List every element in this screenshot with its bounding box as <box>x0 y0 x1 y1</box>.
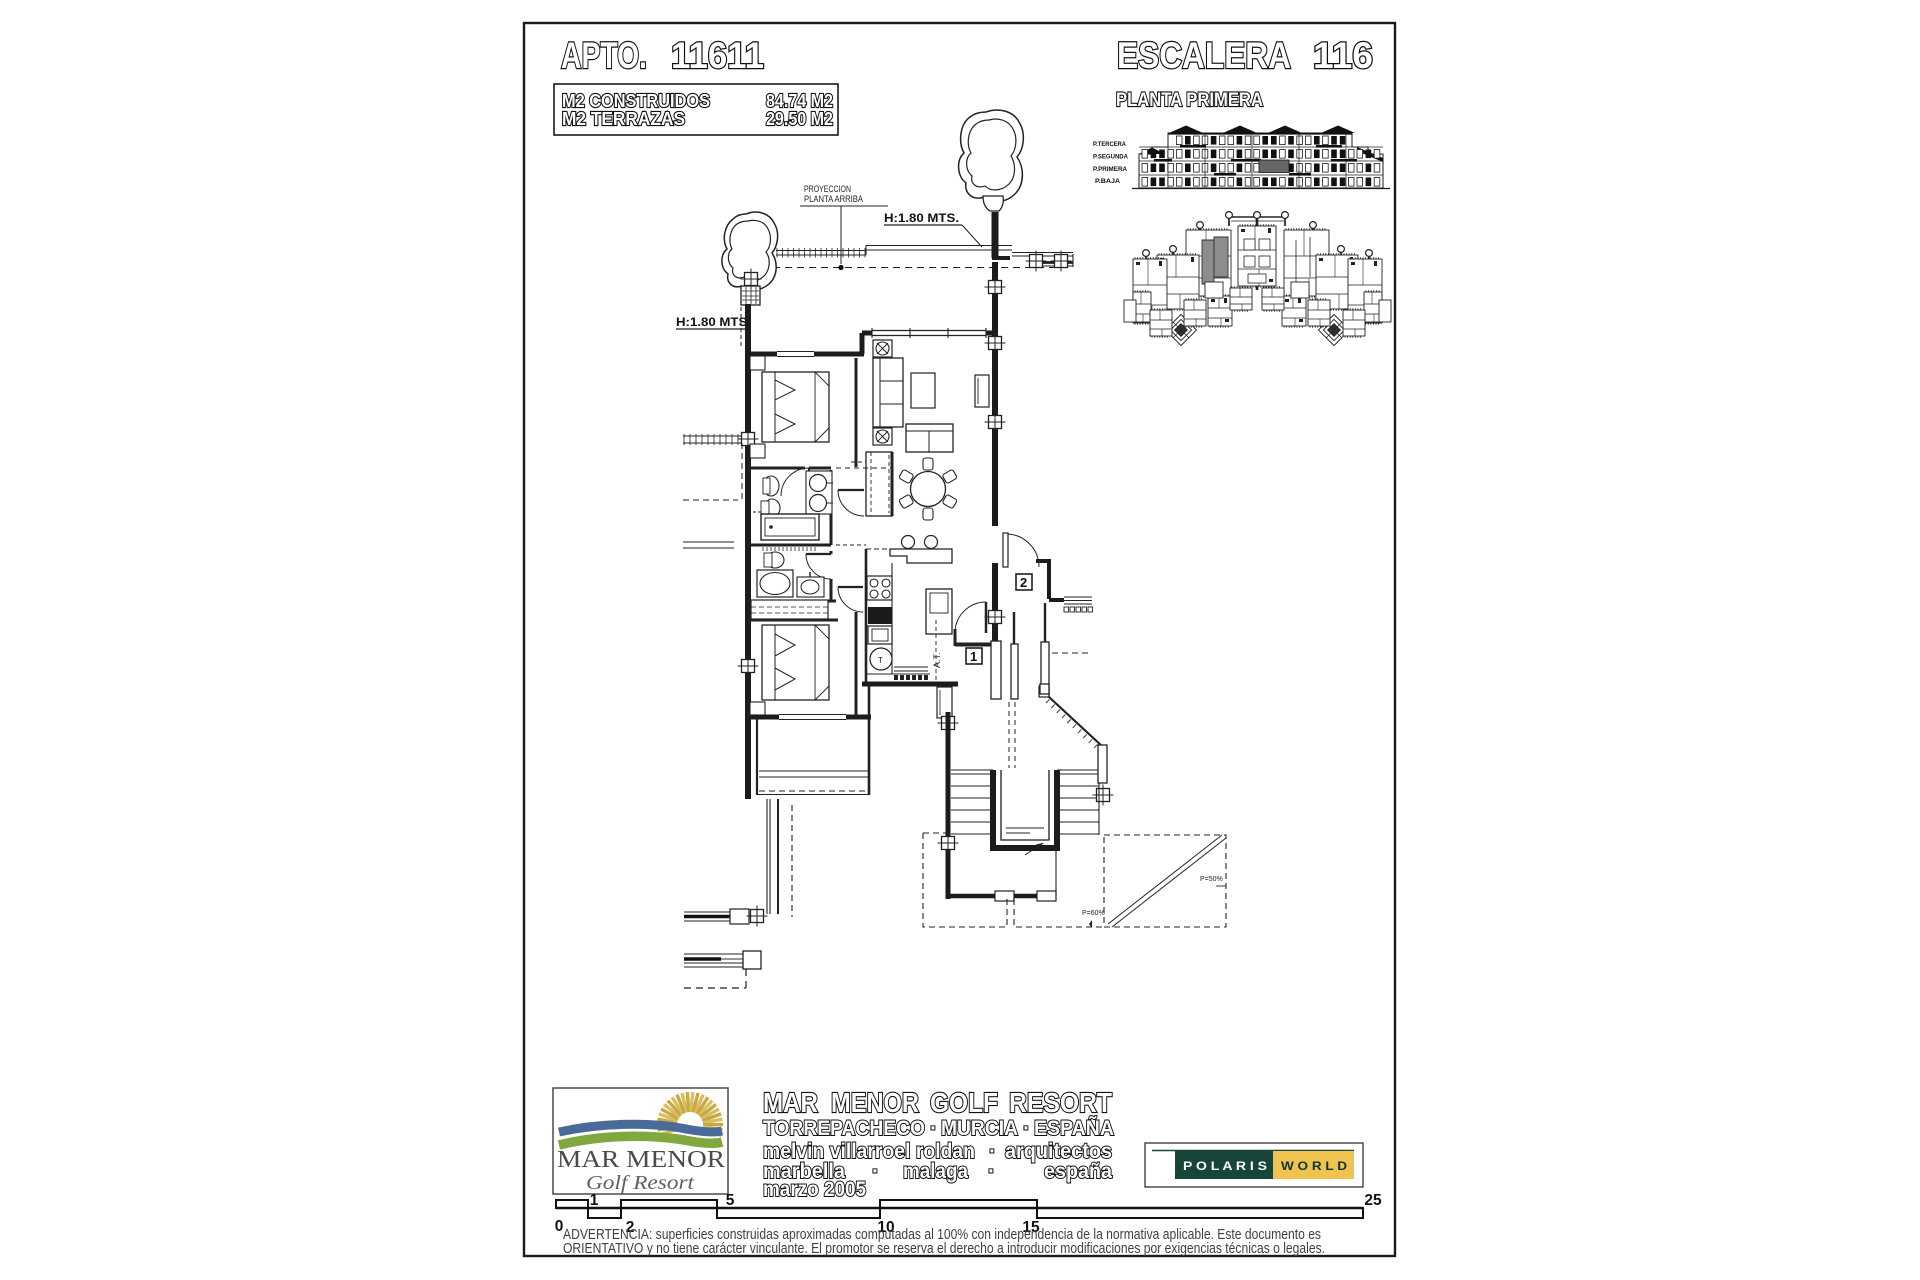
svg-text:·: · <box>872 1160 879 1183</box>
svg-text:MAR MENOR: MAR MENOR <box>557 1146 726 1173</box>
svg-text:PROYECCION: PROYECCION <box>804 184 851 194</box>
svg-text:ESPAÑA: ESPAÑA <box>1034 1117 1114 1140</box>
svg-text:5: 5 <box>726 1192 735 1209</box>
svg-text:H:1.80 MTS.: H:1.80 MTS. <box>676 315 751 329</box>
svg-text:2: 2 <box>1020 575 1027 590</box>
svg-text:ESCALERA: ESCALERA <box>1117 35 1291 76</box>
svg-text:29.50 M2: 29.50 M2 <box>766 108 833 129</box>
svg-text:MAR: MAR <box>763 1087 818 1118</box>
svg-text:M2 TERRAZAS: M2 TERRAZAS <box>562 108 685 129</box>
svg-text:A.T.: A.T. <box>932 652 942 668</box>
svg-text:Golf Resort: Golf Resort <box>586 1172 695 1194</box>
svg-text:MURCIA: MURCIA <box>941 1117 1018 1140</box>
svg-text:españa: españa <box>1044 1160 1112 1183</box>
svg-text:PLANTA PRIMERA: PLANTA PRIMERA <box>1116 90 1263 111</box>
svg-text:·: · <box>1023 1117 1030 1140</box>
svg-text:P.BAJA: P.BAJA <box>1095 178 1121 185</box>
svg-text:T: T <box>878 656 883 665</box>
svg-text:TORREPACHECO: TORREPACHECO <box>763 1117 925 1140</box>
svg-text:P.PRIMERA: P.PRIMERA <box>1093 166 1128 173</box>
svg-text:11611: 11611 <box>671 35 764 76</box>
svg-text:·: · <box>988 1160 995 1183</box>
svg-text:1: 1 <box>970 649 977 664</box>
svg-text:P O L A R I S: P O L A R I S <box>1183 1161 1267 1173</box>
svg-text:·: · <box>930 1117 937 1140</box>
svg-text:RESORT: RESORT <box>1009 1087 1112 1118</box>
svg-text:25: 25 <box>1364 1192 1382 1209</box>
svg-text:ORIENTATIVO y no tiene carácte: ORIENTATIVO y no tiene carácter vinculan… <box>563 1241 1325 1257</box>
svg-text:P.TERCERA: P.TERCERA <box>1093 141 1126 148</box>
svg-text:marzo 2005: marzo 2005 <box>763 1178 866 1201</box>
svg-text:MENOR: MENOR <box>831 1087 919 1118</box>
svg-text:1: 1 <box>590 1192 599 1209</box>
svg-text:GOLF: GOLF <box>930 1087 998 1118</box>
svg-text:P.SEGUNDA: P.SEGUNDA <box>1093 154 1129 161</box>
svg-text:W O R L D: W O R L D <box>1281 1161 1347 1173</box>
svg-text:malaga: malaga <box>903 1160 968 1183</box>
svg-text:APTO.: APTO. <box>561 35 647 76</box>
svg-text:H:1.80 MTS.: H:1.80 MTS. <box>884 211 959 225</box>
svg-text:116: 116 <box>1313 35 1373 76</box>
svg-text:PLANTA ARRIBA: PLANTA ARRIBA <box>804 194 863 204</box>
svg-text:P=50%: P=50% <box>1200 876 1223 883</box>
svg-text:P=60%: P=60% <box>1082 910 1105 917</box>
